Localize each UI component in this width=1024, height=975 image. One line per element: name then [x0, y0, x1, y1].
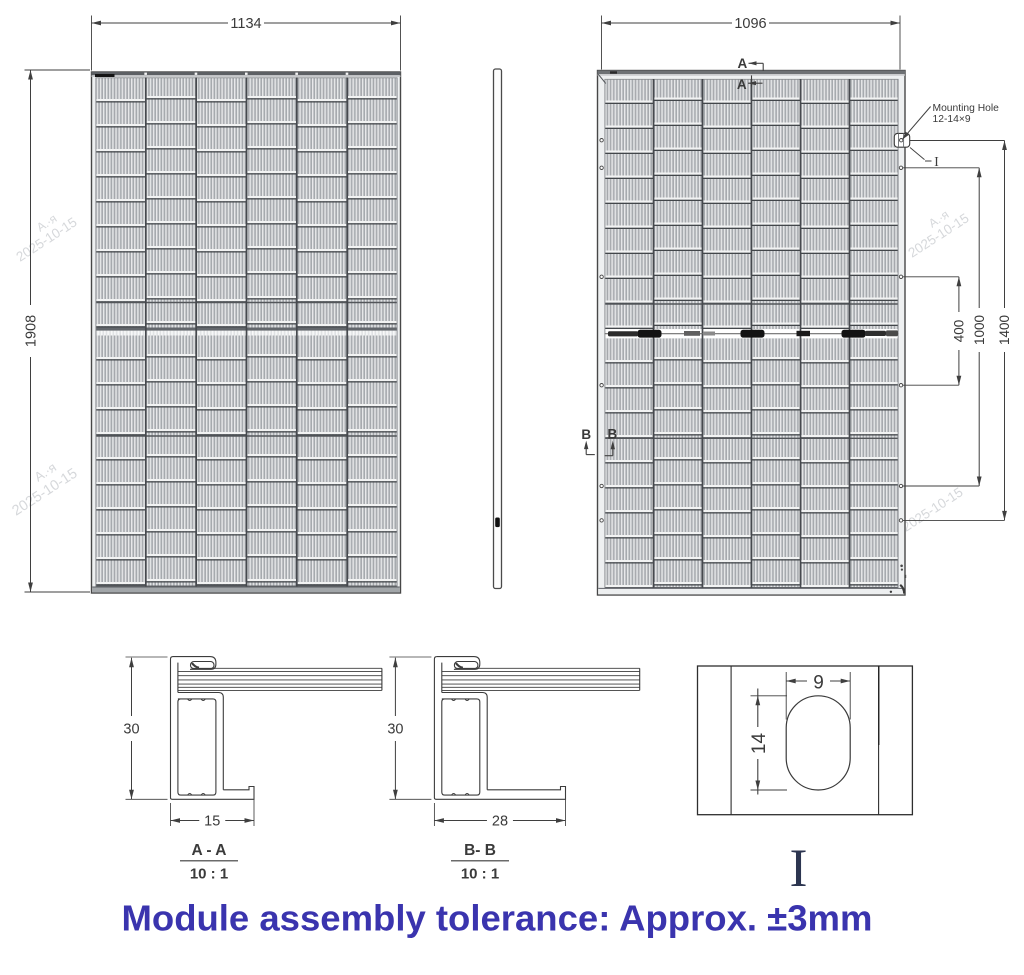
svg-text:10 : 1: 10 : 1	[461, 866, 499, 883]
svg-text:I: I	[934, 154, 939, 169]
svg-text:1096: 1096	[734, 16, 766, 32]
svg-text:B: B	[581, 427, 591, 442]
svg-text:1400: 1400	[997, 315, 1012, 345]
svg-text:I: I	[790, 838, 808, 898]
svg-text:400: 400	[952, 320, 967, 343]
svg-text:B: B	[608, 427, 618, 442]
svg-text:12-14×9: 12-14×9	[933, 114, 971, 125]
svg-text:A: A	[738, 56, 748, 71]
svg-text:Module assembly tolerance: App: Module assembly tolerance: Approx. ±3mm	[122, 898, 873, 939]
svg-text:10 : 1: 10 : 1	[190, 866, 228, 883]
svg-text:1134: 1134	[230, 16, 261, 32]
svg-text:1908: 1908	[24, 315, 40, 347]
svg-text:15: 15	[204, 814, 220, 830]
svg-text:A: A	[737, 77, 747, 92]
svg-text:Mounting Hole: Mounting Hole	[933, 103, 1000, 114]
svg-text:30: 30	[123, 722, 139, 738]
svg-text:14: 14	[749, 733, 770, 755]
svg-text:1000: 1000	[972, 315, 987, 345]
svg-text:9: 9	[813, 673, 824, 694]
svg-text:28: 28	[492, 814, 508, 830]
svg-text:A - A: A - A	[191, 842, 226, 859]
svg-text:30: 30	[387, 722, 403, 738]
svg-text:B- B: B- B	[464, 842, 496, 859]
